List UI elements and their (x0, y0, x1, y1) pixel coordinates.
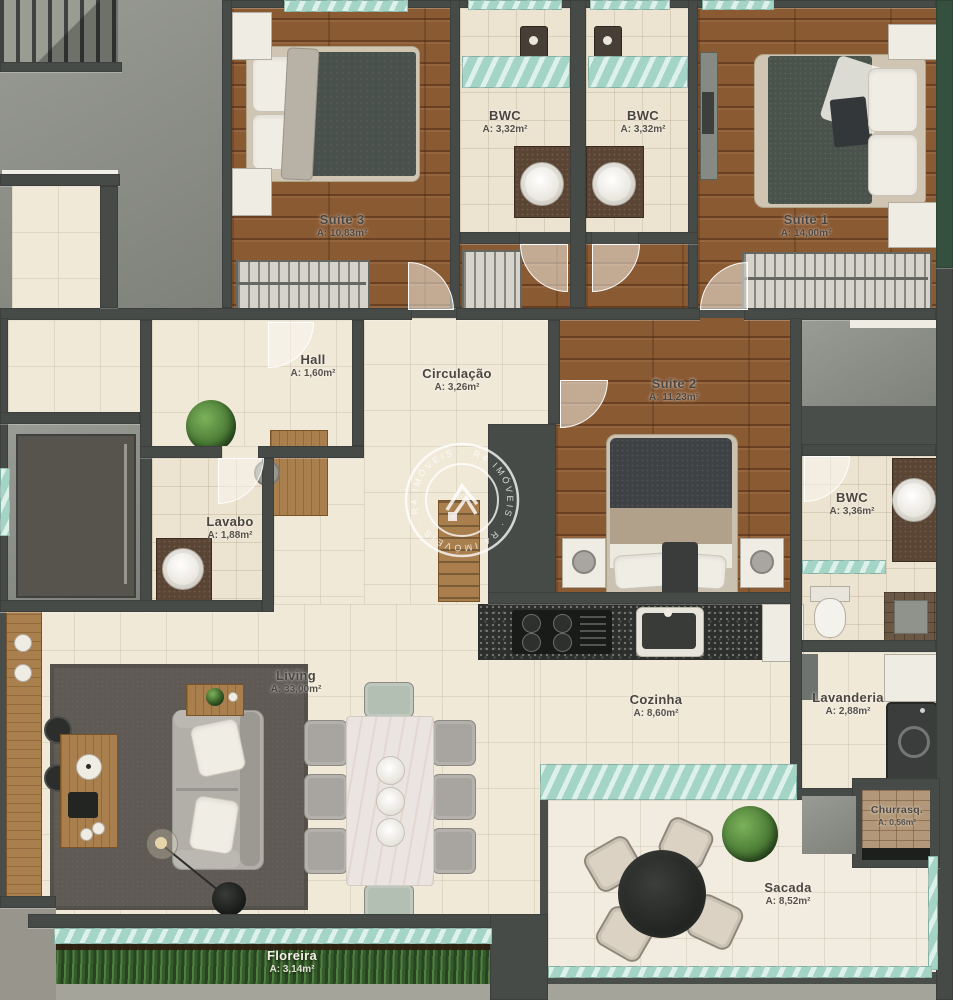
sofa-pillow (188, 795, 240, 855)
suite3-nightstand (232, 12, 272, 60)
shower-glass-3 (802, 560, 886, 574)
bwc3-toilet-bowl (814, 598, 846, 638)
pantry-cabinet (438, 500, 480, 602)
cooktop-knobs (580, 616, 606, 648)
room-name: Floreira (267, 948, 317, 963)
sofa-armrest (174, 850, 240, 868)
room-area: A: 3,32m² (620, 124, 665, 135)
lavanderia-label: Lavanderia A: 2,88m² (812, 690, 884, 717)
lavabo-label: Lavabo A: 1,88m² (206, 514, 253, 541)
balcony-rail-bottom (548, 966, 932, 978)
room-name: Suite 2 (649, 376, 699, 391)
churras-side-slab (802, 796, 856, 854)
room-area: A: 0,56m² (871, 817, 923, 827)
suite2-lamp (750, 550, 774, 574)
dining-chair (304, 828, 348, 874)
wall (0, 600, 262, 612)
hall-wardrobe (462, 250, 522, 310)
right-exterior-green (936, 0, 953, 268)
dining-plate (376, 787, 405, 816)
kitchen-sink-basin (642, 613, 696, 649)
wall (548, 320, 560, 424)
wall (638, 232, 698, 244)
elevator-door-line (124, 444, 127, 584)
wardrobe-rail (236, 282, 366, 285)
cozinha-label: Cozinha A: 8,60m² (630, 692, 683, 719)
room-area: A: 3,36m² (829, 506, 874, 517)
coffee-table-tray (68, 792, 98, 818)
suite3-nightstand (232, 168, 272, 216)
wall (140, 320, 152, 612)
wall (570, 0, 586, 308)
bwc1-toilet-detail (529, 36, 538, 45)
coffee-table-cup (92, 822, 105, 835)
dining-chair-head (364, 682, 414, 718)
balcony-sliding-door (540, 764, 797, 800)
stairs (0, 0, 118, 62)
dining-chair (304, 720, 348, 766)
bwc2-window (590, 0, 670, 10)
coffee-table-cup (80, 828, 93, 841)
bwc3-sink (892, 478, 936, 522)
entry-nook-floor (12, 186, 100, 308)
room-area: A: 8,60m² (630, 708, 683, 719)
wall (688, 0, 698, 308)
dining-chair (432, 774, 476, 820)
floor-lamp-bulb (155, 837, 167, 849)
room-name: Lavanderia (812, 690, 884, 705)
suite1-nightstand (888, 202, 938, 248)
washer-door (898, 726, 930, 758)
wall (450, 0, 460, 308)
wall (744, 308, 936, 320)
candle-wick (86, 764, 91, 769)
lavabo-door-gap (222, 446, 258, 458)
shower-glass-2 (588, 56, 688, 88)
wall (262, 458, 274, 612)
room-name: Suite 3 (317, 212, 368, 227)
laundry-cabinet (884, 654, 938, 702)
room-area: A: 10,83m² (317, 228, 368, 239)
wall (258, 446, 364, 458)
wall (28, 914, 548, 928)
room-name: Hall (290, 352, 335, 367)
room-area: A: 14,00m² (781, 228, 832, 239)
cooktop-burner (522, 633, 541, 652)
sofa-cushion-seam (176, 788, 238, 791)
room-area: A: 33,00m² (271, 684, 322, 695)
entry-floor (8, 320, 140, 412)
closet-frame (488, 424, 556, 600)
hall-label: Hall A: 1,60m² (290, 352, 335, 379)
suite2-blanket-band (610, 508, 732, 546)
wall (0, 318, 8, 612)
bottom-sidewalk (0, 984, 953, 1000)
balcony-table (618, 850, 706, 938)
balcony-rail-right (928, 856, 938, 970)
dining-plate (376, 818, 405, 847)
room-area: A: 3,26m² (422, 382, 491, 393)
wall (222, 0, 232, 308)
suite1-pillow (868, 134, 918, 196)
cooktop-burner (553, 633, 572, 652)
room-name: Suite 1 (781, 212, 832, 227)
wall (0, 62, 122, 72)
hall-plant (186, 400, 236, 452)
wall (0, 308, 412, 320)
bwc-suite1-label: BWC A: 3,32m² (620, 108, 665, 135)
bar-sink (14, 664, 32, 682)
wall (802, 444, 936, 456)
suite2-lamp (572, 550, 596, 574)
suite1-wardrobe (742, 252, 932, 310)
suite2-blanket (610, 438, 732, 510)
dining-chair (432, 720, 476, 766)
dining-chair (432, 828, 476, 874)
churrasqueira-label: Churrasq. A: 0,56m² (871, 804, 923, 827)
suite3-wardrobe (236, 260, 370, 312)
churrasqueira-grill (862, 848, 930, 860)
living-label: Living A: 33,00m² (271, 668, 322, 695)
suite1-pillow (868, 68, 918, 132)
suite1-window (702, 0, 774, 10)
sacada-label: Sacada A: 8,52m² (764, 880, 811, 907)
suite1-folded-throw (830, 96, 871, 148)
wall (456, 308, 700, 320)
wall (802, 640, 936, 652)
wall (460, 232, 520, 244)
washer-knob (920, 708, 925, 713)
shaft-floor (802, 318, 936, 406)
room-area: A: 1,60m² (290, 368, 335, 379)
room-area: A: 8,52m² (764, 896, 811, 907)
balcony-plant (722, 806, 778, 862)
room-area: A: 11,23m² (649, 392, 699, 403)
wall (0, 412, 140, 424)
room-name: Churrasq. (871, 804, 923, 816)
wall (100, 186, 118, 308)
corner-slab (0, 896, 56, 1000)
room-area: A: 2,88m² (812, 706, 884, 717)
room-name: Circulação (422, 366, 491, 381)
shaft-ledge (850, 320, 936, 328)
wall (586, 232, 592, 244)
wall (490, 914, 548, 1000)
hall-floor (152, 320, 352, 446)
bwc1-sink (520, 162, 564, 206)
wardrobe-rail (742, 277, 928, 280)
room-name: BWC (829, 490, 874, 505)
bwc2-sink (592, 162, 636, 206)
suite1-nightstand (888, 24, 938, 60)
suite1-tv (702, 92, 714, 134)
wall (772, 0, 936, 8)
lavabo-window (0, 468, 10, 536)
bwc-suite2-label: BWC A: 3,36m² (829, 490, 874, 517)
room-name: Lavabo (206, 514, 253, 529)
room-area: A: 1,88m² (206, 530, 253, 541)
circulacao-label: Circulação A: 3,26m² (422, 366, 491, 393)
dining-chair (304, 774, 348, 820)
suite1-label: Suite 1 A: 14,00m² (781, 212, 832, 239)
bwc3-shower-tray (894, 600, 928, 634)
side-table-decor (228, 692, 238, 702)
floor-plan: Suite 3 A: 10,83m² BWC A: 3,32m² BWC A: … (0, 0, 953, 1000)
floreira-label: Floreira A: 3,14m² (267, 948, 317, 975)
corner-wall (0, 896, 56, 908)
wall (790, 318, 802, 792)
suite3-label: Suite 3 A: 10,83m² (317, 212, 368, 239)
room-name: Living (271, 668, 322, 683)
floreira-window (54, 928, 492, 944)
room-name: BWC (620, 108, 665, 123)
room-name: Cozinha (630, 692, 683, 707)
bwc1-window (468, 0, 562, 10)
room-name: BWC (482, 108, 527, 123)
floor-lamp-shade (212, 882, 246, 916)
bar-sink (14, 634, 32, 652)
lavabo-sink (162, 548, 204, 590)
shower-glass-1 (462, 56, 570, 88)
landing-trim (2, 170, 118, 174)
bwc-suite3-label: BWC A: 3,32m² (482, 108, 527, 135)
side-table-plant (206, 688, 224, 706)
room-area: A: 3,14m² (267, 964, 317, 975)
sofa-backrest (240, 712, 260, 866)
elevator-cab (16, 434, 136, 598)
cooktop-burner (522, 614, 541, 633)
room-area: A: 3,32m² (482, 124, 527, 135)
wall (488, 592, 802, 604)
wall (140, 446, 222, 458)
room-name: Sacada (764, 880, 811, 895)
bwc2-toilet-detail (603, 36, 612, 45)
suite2-label: Suite 2 A: 11,23m² (649, 376, 699, 403)
dining-plate (376, 756, 405, 785)
kitchen-faucet (664, 609, 672, 617)
wall (0, 174, 120, 186)
suite3-window (284, 0, 408, 12)
wall (352, 320, 364, 446)
cooktop-burner (553, 614, 572, 633)
sofa-pillow (189, 718, 247, 779)
